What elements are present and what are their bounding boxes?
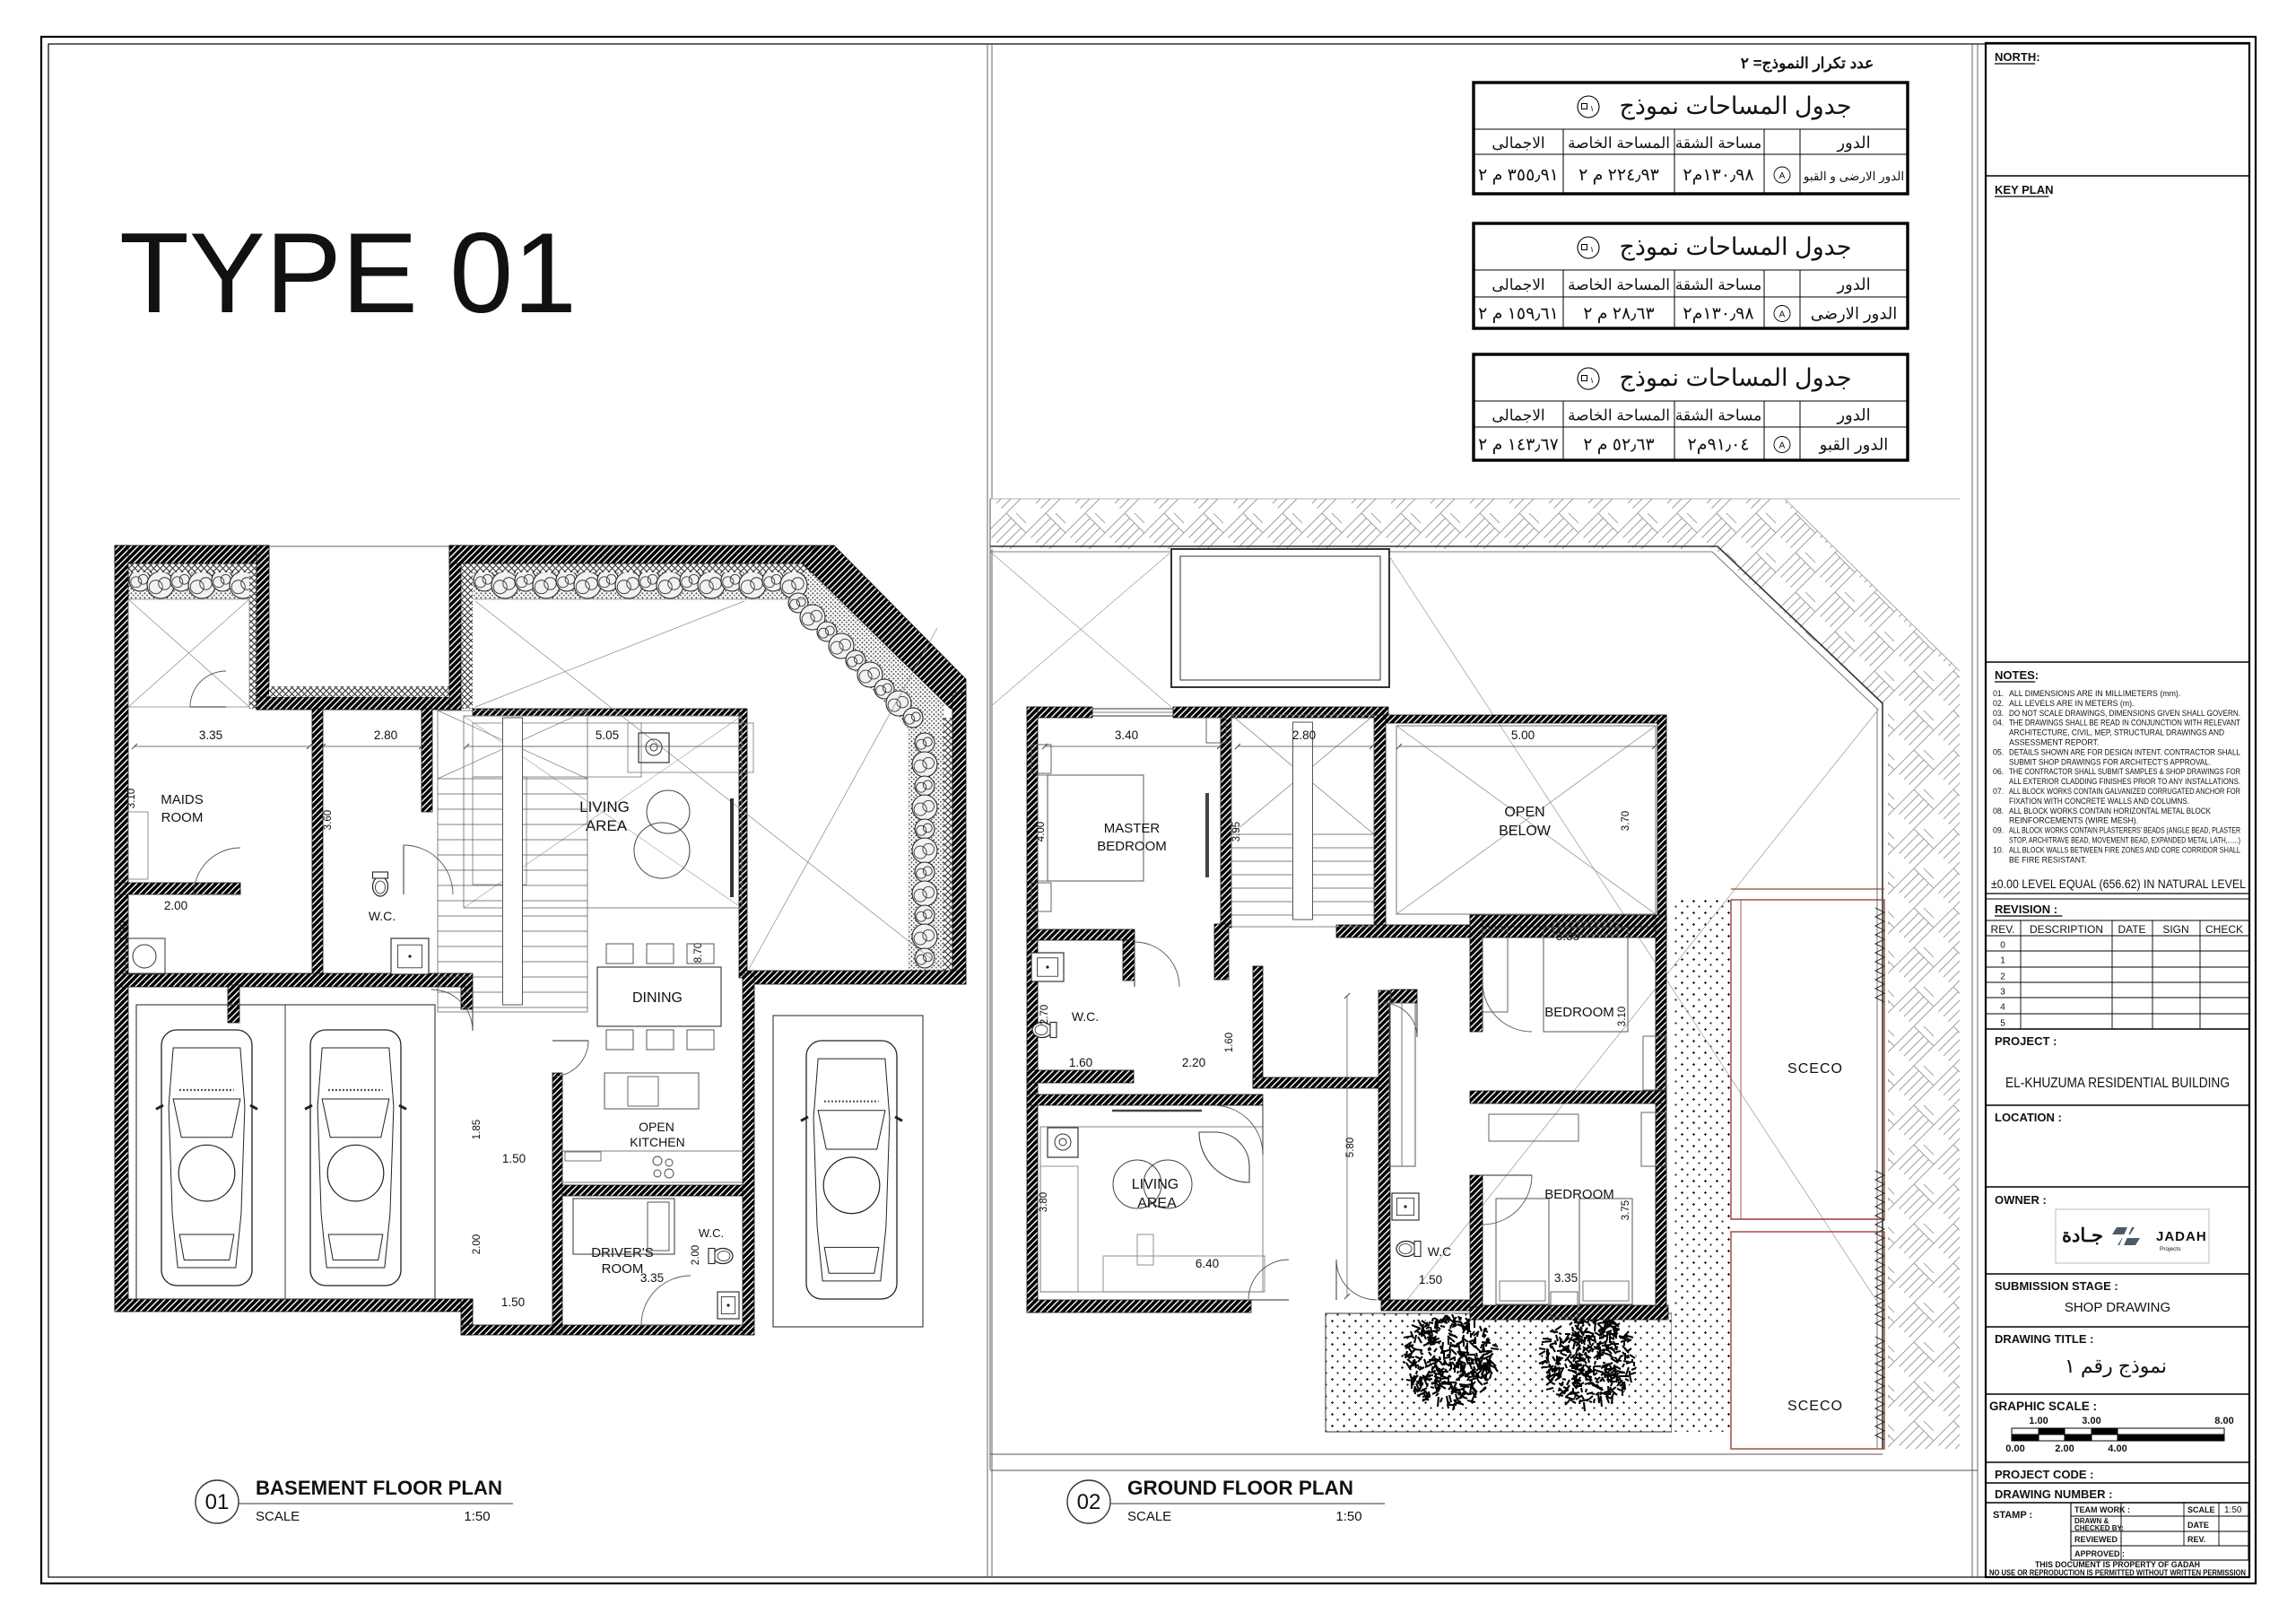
svg-text:SCECO: SCECO: [1787, 1061, 1843, 1077]
svg-text:EL-KHUZUMA RESIDENTIAL BUILDIN: EL-KHUZUMA RESIDENTIAL BUILDING: [2005, 1076, 2230, 1091]
svg-text:BASEMENT FLOOR PLAN: BASEMENT FLOOR PLAN: [256, 1477, 502, 1499]
svg-text:٣٥٥٫٩١ م ٢: ٣٥٥٫٩١ م ٢: [1478, 166, 1559, 185]
svg-text:04.: 04.: [1993, 719, 2004, 728]
svg-text:ALL EXTERIOR CLADDING FINISHES: ALL EXTERIOR CLADDING FINISHES PRIOR TO …: [2009, 777, 2240, 786]
svg-text:٢٨٫٦٣ م ٢: ٢٨٫٦٣ م ٢: [1583, 305, 1655, 324]
svg-text:W.C: W.C: [1428, 1244, 1451, 1259]
svg-text:الدور القبو: الدور القبو: [1819, 436, 1889, 455]
svg-text:NORTH:: NORTH:: [1995, 50, 2040, 64]
svg-text:٥٢٫٦٣ م ٢: ٥٢٫٦٣ م ٢: [1583, 436, 1655, 455]
svg-text:3.35: 3.35: [1554, 1271, 1578, 1285]
svg-text:3.35: 3.35: [1556, 929, 1579, 943]
svg-text:NO USE OR REPRODUCTION IS PERM: NO USE OR REPRODUCTION IS PERMITTED WITH…: [1989, 1568, 2246, 1577]
svg-text:جـادة: جـادة: [2062, 1225, 2103, 1246]
svg-text:الاجمالى: الاجمالى: [1492, 276, 1544, 293]
svg-text:0.00: 0.00: [2005, 1443, 2024, 1454]
svg-text:STOP, ARCHITRAVE BEAD, MOVEMEN: STOP, ARCHITRAVE BEAD, MOVEMENT BEAD, EX…: [2009, 836, 2240, 845]
svg-text:Projects: Projects: [2160, 1246, 2181, 1252]
svg-text:02: 02: [1077, 1490, 1101, 1514]
svg-text:FIXATION WITH CONCRETE WALLS A: FIXATION WITH CONCRETE WALLS AND COLUMNS…: [2009, 797, 2189, 806]
svg-text:ALL BLOCK WALLS BETWEEN FIRE Z: ALL BLOCK WALLS BETWEEN FIRE ZONES AND C…: [2009, 845, 2240, 854]
svg-text:01: 01: [205, 1490, 230, 1514]
svg-text:4.00: 4.00: [2108, 1443, 2126, 1454]
svg-text:01.: 01.: [1993, 689, 2004, 698]
svg-text:الدور الارضى و القبو: الدور الارضى و القبو: [1803, 170, 1904, 184]
svg-text:3.40: 3.40: [1115, 728, 1138, 742]
svg-text:4.00: 4.00: [1036, 822, 1047, 842]
svg-text:REVISION :: REVISION :: [1995, 903, 2057, 916]
svg-text:NOTES:: NOTES:: [1995, 668, 2039, 682]
svg-text:AREA: AREA: [586, 817, 628, 834]
svg-text:±0.00 LEVEL EQUAL (656.62) IN: ±0.00 LEVEL EQUAL (656.62) IN NATURAL LE…: [1991, 877, 2246, 891]
svg-text:٩١٫٠٤م٢: ٩١٫٠٤م٢: [1688, 436, 1750, 455]
svg-text:ALL LEVELS ARE IN METERS (m).: ALL LEVELS ARE IN METERS (m).: [2009, 699, 2135, 708]
svg-text:ROOM: ROOM: [602, 1261, 644, 1277]
svg-text:١٣٠٫٩٨م٢: ١٣٠٫٩٨م٢: [1683, 166, 1753, 185]
svg-text:الدور الارضى: الدور الارضى: [1811, 305, 1898, 324]
svg-text:OPEN: OPEN: [639, 1120, 674, 1134]
svg-text:1:50: 1:50: [464, 1509, 490, 1524]
svg-text:1.00: 1.00: [2029, 1416, 2048, 1426]
svg-text:JADAH: JADAH: [2156, 1229, 2207, 1244]
svg-text:KEY PLAN: KEY PLAN: [1995, 183, 2054, 196]
svg-text:BEDROOM: BEDROOM: [1097, 839, 1167, 854]
svg-text:1:50: 1:50: [1335, 1509, 1361, 1524]
svg-text:ALL BLOCK WORKS CONTAIN HORIZO: ALL BLOCK WORKS CONTAIN HORIZONTAL METAL…: [2009, 807, 2211, 815]
svg-text:الدور: الدور: [1836, 406, 1870, 425]
svg-text:BEDROOM: BEDROOM: [1544, 1005, 1614, 1020]
svg-text:5: 5: [2000, 1019, 2005, 1029]
svg-text:REV.: REV.: [2187, 1535, 2205, 1544]
svg-text:REVIEWED :: REVIEWED :: [2074, 1535, 2123, 1544]
svg-text:GRAPHIC SCALE :: GRAPHIC SCALE :: [1989, 1400, 2097, 1413]
svg-text:TEAM WORK :: TEAM WORK :: [2074, 1505, 2130, 1514]
svg-text:المساحة الخاصة: المساحة الخاصة: [1568, 276, 1670, 293]
svg-text:جدول المساحات نموذج: جدول المساحات نموذج: [1619, 364, 1851, 392]
svg-text:LIVING: LIVING: [1132, 1177, 1178, 1192]
svg-text:٢٢٤٫٩٣ م ٢: ٢٢٤٫٩٣ م ٢: [1578, 166, 1659, 185]
svg-text:ALL DIMENSIONS ARE IN MILLIMET: ALL DIMENSIONS ARE IN MILLIMETERS (mm).: [2009, 689, 2180, 698]
svg-text:ROOM: ROOM: [161, 810, 204, 825]
svg-text:DINING: DINING: [632, 990, 683, 1006]
svg-text:APPROVED :: APPROVED :: [2074, 1549, 2125, 1558]
svg-text:05.: 05.: [1993, 747, 2004, 756]
svg-text:1.85: 1.85: [472, 1120, 483, 1139]
svg-text:0: 0: [2000, 941, 2005, 951]
svg-text:A: A: [1779, 310, 1786, 320]
svg-text:جدول المساحات نموذج: جدول المساحات نموذج: [1619, 92, 1851, 120]
svg-text:3.75: 3.75: [1621, 1200, 1631, 1220]
svg-text:الاجمالى: الاجمالى: [1492, 135, 1544, 152]
svg-text:1.60: 1.60: [1224, 1033, 1235, 1052]
svg-text:REINFORCEMENTS (WIRE MESH).: REINFORCEMENTS (WIRE MESH).: [2009, 816, 2138, 825]
svg-text:3: 3: [2000, 988, 2005, 998]
svg-text:1.50: 1.50: [1419, 1273, 1442, 1286]
svg-text:03.: 03.: [1993, 709, 2004, 718]
svg-text:3.10: 3.10: [126, 789, 137, 808]
svg-text:جدول المساحات نموذج: جدول المساحات نموذج: [1619, 233, 1851, 261]
svg-text:SUBMIT SHOP DRAWINGS FOR ARCHI: SUBMIT SHOP DRAWINGS FOR ARCHITECT’S APP…: [2009, 757, 2211, 766]
svg-text:2: 2: [2000, 972, 2005, 982]
svg-text:المساحة الخاصة: المساحة الخاصة: [1568, 135, 1670, 152]
svg-text:DATE: DATE: [2118, 923, 2145, 936]
svg-text:THE CONTRACTOR SHALL SUBMIT S: THE CONTRACTOR SHALL SUBMIT SAMPLES & SH…: [2009, 767, 2240, 776]
svg-text:TYPE 01: TYPE 01: [119, 209, 577, 336]
svg-text:10.: 10.: [1993, 845, 2004, 854]
svg-text:LOCATION :: LOCATION :: [1995, 1111, 2062, 1124]
svg-text:3.80: 3.80: [1039, 1192, 1049, 1212]
svg-text:مساحة الشقة: مساحة الشقة: [1675, 135, 1762, 152]
svg-text:1:50: 1:50: [2224, 1505, 2242, 1515]
svg-text:DRIVER'S: DRIVER'S: [591, 1245, 654, 1260]
svg-text:6.40: 6.40: [1196, 1257, 1219, 1270]
svg-text:W.C.: W.C.: [699, 1226, 724, 1240]
svg-text:ASSESSMENT REPORT.: ASSESSMENT REPORT.: [2009, 738, 2099, 747]
svg-text:3.95: 3.95: [1231, 822, 1242, 842]
svg-text:KITCHEN: KITCHEN: [630, 1135, 684, 1149]
svg-text:SCECO: SCECO: [1787, 1399, 1843, 1414]
svg-text:3.10: 3.10: [1617, 1007, 1628, 1026]
svg-text:١: ١: [1590, 104, 1595, 113]
svg-text:5.05: 5.05: [596, 728, 619, 742]
svg-text:SUBMISSION STAGE :: SUBMISSION STAGE :: [1995, 1279, 2118, 1293]
svg-text:1.60: 1.60: [1069, 1056, 1092, 1069]
svg-text:W.C.: W.C.: [369, 909, 396, 923]
svg-text:BELOW: BELOW: [1499, 824, 1552, 839]
svg-text:مساحة الشقة: مساحة الشقة: [1675, 276, 1762, 293]
svg-text:A: A: [1779, 171, 1786, 181]
svg-text:AREA: AREA: [1137, 1196, 1177, 1211]
svg-text:DRAWING TITLE :: DRAWING TITLE :: [1995, 1332, 2094, 1346]
svg-text:SCALE: SCALE: [256, 1509, 300, 1524]
svg-text:المساحة الخاصة: المساحة الخاصة: [1568, 407, 1670, 424]
svg-text:3.35: 3.35: [640, 1271, 664, 1285]
svg-text:CHECKED BY:: CHECKED BY:: [2074, 1524, 2124, 1532]
svg-text:2.00: 2.00: [164, 899, 187, 912]
svg-text:BE FIRE RESISTANT.: BE FIRE RESISTANT.: [2009, 855, 2087, 864]
svg-text:2.00: 2.00: [691, 1245, 701, 1265]
svg-text:١: ١: [1590, 245, 1595, 254]
svg-text:SCALE: SCALE: [1127, 1509, 1171, 1524]
svg-text:2.20: 2.20: [1182, 1056, 1205, 1069]
svg-text:STAMP :: STAMP :: [1993, 1510, 2032, 1521]
svg-text:MAIDS: MAIDS: [161, 792, 204, 807]
svg-text:DESCRIPTION: DESCRIPTION: [2030, 923, 2103, 936]
svg-text:الاجمالى: الاجمالى: [1492, 407, 1544, 424]
svg-text:08.: 08.: [1993, 807, 2004, 815]
svg-text:A: A: [1779, 441, 1786, 451]
svg-text:الدور: الدور: [1836, 275, 1870, 294]
svg-text:DRAWING NUMBER :: DRAWING NUMBER :: [1995, 1487, 2112, 1501]
svg-text:SIGN: SIGN: [2162, 923, 2188, 936]
svg-text:OWNER :: OWNER :: [1995, 1193, 2047, 1207]
svg-text:2.80: 2.80: [1292, 728, 1316, 742]
svg-text:1: 1: [2000, 956, 2005, 966]
svg-text:MASTER: MASTER: [1104, 821, 1161, 836]
svg-text:PROJECT :: PROJECT :: [1995, 1034, 2057, 1048]
svg-text:5.00: 5.00: [1511, 728, 1535, 742]
svg-text:3.60: 3.60: [323, 810, 334, 830]
svg-text:2.70: 2.70: [1039, 1005, 1050, 1025]
svg-text:١: ١: [1590, 376, 1595, 385]
svg-text:1.50: 1.50: [502, 1152, 526, 1165]
svg-text:PROJECT CODE :: PROJECT CODE :: [1995, 1468, 2094, 1481]
svg-text:3.35: 3.35: [199, 728, 222, 742]
svg-text:LIVING: LIVING: [579, 798, 630, 815]
svg-text:3.00: 3.00: [2082, 1416, 2100, 1426]
svg-text:3.70: 3.70: [1621, 811, 1631, 831]
svg-text:ARCHITECTURE, CIVIL, MEP, STRU: ARCHITECTURE, CIVIL, MEP, STRUCTURAL DRA…: [2009, 728, 2224, 737]
svg-text:4: 4: [2000, 1003, 2005, 1013]
svg-text:١٤٣٫٦٧ م ٢: ١٤٣٫٦٧ م ٢: [1478, 436, 1559, 455]
svg-text:THE DRAWINGS SHALL BE READ IN: THE DRAWINGS SHALL BE READ IN CONJUNCTIO…: [2009, 719, 2241, 728]
svg-text:ALL BLOCK WORKS CONTAIN PLASTE: ALL BLOCK WORKS CONTAIN PLASTERERS’ BEAD…: [2009, 826, 2240, 835]
svg-text:8.00: 8.00: [2214, 1416, 2233, 1426]
svg-text:ALL BLOCK WORKS CONTAIN GALVAN: ALL BLOCK WORKS CONTAIN GALVANIZED CORRU…: [2009, 787, 2240, 796]
svg-text:CHECK: CHECK: [2205, 923, 2243, 936]
svg-text:REV.: REV.: [1991, 923, 2015, 936]
svg-text:SCALE: SCALE: [2187, 1505, 2215, 1514]
svg-text:عدد تكرار النموذج= ٢: عدد تكرار النموذج= ٢: [1741, 55, 1874, 73]
svg-text:١٣٠٫٩٨م٢: ١٣٠٫٩٨م٢: [1683, 305, 1753, 324]
svg-text:مساحة الشقة: مساحة الشقة: [1675, 407, 1762, 424]
svg-text:OPEN: OPEN: [1504, 805, 1544, 820]
svg-text:1.50: 1.50: [501, 1295, 525, 1309]
svg-text:2.00: 2.00: [472, 1234, 483, 1254]
svg-text:02.: 02.: [1993, 699, 2004, 708]
svg-text:06.: 06.: [1993, 767, 2004, 776]
svg-text:BEDROOM: BEDROOM: [1544, 1187, 1614, 1202]
svg-text:09.: 09.: [1993, 826, 2004, 835]
svg-text:2.80: 2.80: [374, 728, 397, 742]
svg-text:١٥٩٫٦١ م ٢: ١٥٩٫٦١ م ٢: [1478, 305, 1559, 324]
svg-text:DETAILS SHOWN ARE FOR DESIGN I: DETAILS SHOWN ARE FOR DESIGN INTENT. CON…: [2009, 747, 2240, 756]
svg-text:2.00: 2.00: [2055, 1443, 2074, 1454]
svg-text:DATE: DATE: [2187, 1521, 2209, 1530]
svg-text:W.C.: W.C.: [1072, 1009, 1099, 1024]
svg-text:SHOP DRAWING: SHOP DRAWING: [2065, 1300, 2170, 1315]
svg-text:DO NOT SCALE DRAWINGS, DIMENSI: DO NOT SCALE DRAWINGS, DIMENSIONS GIVEN …: [2009, 709, 2240, 718]
svg-text:07.: 07.: [1993, 787, 2004, 796]
svg-text:8.70: 8.70: [693, 943, 704, 963]
svg-text:نموذج رقم ١: نموذج رقم ١: [2065, 1355, 2167, 1378]
svg-text:GROUND FLOOR PLAN: GROUND FLOOR PLAN: [1127, 1477, 1353, 1499]
svg-text:الدور: الدور: [1836, 134, 1870, 153]
